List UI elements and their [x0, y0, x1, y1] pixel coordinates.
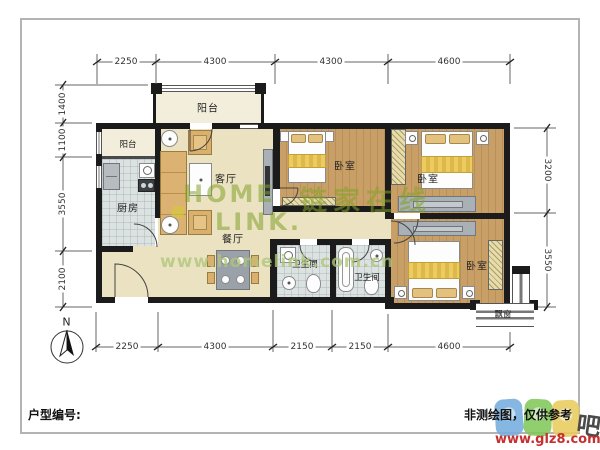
dim-bottom-1: 2250 [114, 342, 141, 352]
label-bedroom-mid: 卧室 [334, 158, 356, 173]
nightstand [405, 131, 418, 145]
label-bath-left: 卫生间 [292, 258, 318, 270]
site-watermark-url: www.glz8.com [495, 432, 600, 447]
wall-balcony-bottom-a [155, 123, 190, 129]
bathtub [338, 247, 354, 292]
wall-bedroom-tr-bottom-a [385, 213, 394, 219]
floorplan-page: 2250 4300 4300 4600 2250 4300 2150 2150 … [0, 0, 600, 450]
side-table-bottom [161, 216, 179, 234]
label-bath-right: 卫生间 [354, 271, 380, 283]
wardrobe-bottomright [398, 221, 476, 236]
nightstand [394, 286, 407, 299]
dining-table [216, 250, 250, 290]
closet-topright [391, 129, 406, 185]
unit-number-label: 户型编号: [28, 406, 81, 423]
wall-bath-divider [330, 245, 336, 297]
dining-chair [207, 272, 215, 284]
dim-left-2: 1100 [58, 127, 68, 154]
nightstand [462, 286, 475, 299]
dim-top-2: 4300 [202, 57, 229, 67]
living-top-window [240, 124, 258, 129]
wall-bedroom-br-left [385, 245, 391, 309]
nightstand [476, 131, 489, 145]
dim-top-3: 4300 [318, 57, 345, 67]
wall-dining-bath-divider [270, 239, 277, 303]
dim-bottom-5: 4600 [436, 342, 463, 352]
dining-chair [207, 255, 215, 267]
dim-left-1: 1400 [58, 91, 68, 118]
balcony-wall-right [261, 92, 264, 125]
wall-bottom-bedroom [388, 303, 480, 309]
kitchen-window [96, 166, 102, 188]
fridge [103, 163, 120, 190]
bathroom-sink [282, 276, 296, 290]
bed-mid [288, 131, 326, 183]
entrance-opening [115, 297, 148, 303]
wardrobe-topright [398, 196, 476, 212]
closet-bottomright [488, 240, 503, 290]
dim-bottom-2: 4300 [202, 342, 229, 352]
wall-kitchen-bottom [96, 246, 133, 252]
dim-bottom-3: 2150 [289, 342, 316, 352]
dim-left-3: 3550 [58, 191, 68, 218]
dim-right-1: 3200 [542, 157, 552, 184]
side-table-top [161, 130, 178, 147]
disclaimer-text: 非测绘图，仅供参考 [464, 406, 572, 423]
balcony-wall-left [153, 92, 156, 125]
label-balcony-top: 阳台 [197, 100, 219, 115]
bathroom-sink [370, 249, 383, 262]
balcony-top-window [162, 85, 255, 92]
label-balcony-left: 阳台 [119, 138, 136, 150]
wall-bedroom-tr-bottom-b [420, 213, 510, 219]
room-hallway [273, 212, 391, 239]
compass-north-label: N [62, 316, 71, 329]
armchair-top [188, 130, 212, 155]
kitchen-sink [139, 163, 155, 178]
dim-bottom-4: 2150 [347, 342, 374, 352]
armchair-bottom [188, 210, 212, 235]
stove [138, 179, 155, 192]
toilet [306, 274, 321, 293]
wall-bath-top-c [369, 239, 391, 245]
balcony-left-window [96, 132, 102, 154]
dim-right-2: 3550 [542, 247, 552, 274]
bay-window-post-top [512, 266, 530, 274]
label-kitchen: 厨房 [117, 200, 139, 215]
dim-top-4: 4600 [436, 57, 463, 67]
coffee-table [189, 163, 212, 196]
label-bedroom-bottomright: 卧室 [466, 258, 488, 273]
wall-balcony-kitchen-divider [102, 156, 155, 159]
brand-logo-dot [171, 205, 185, 219]
dining-chair [251, 255, 259, 267]
label-dining: 餐厅 [222, 231, 244, 246]
wall-top-left [96, 123, 158, 129]
dim-top-1: 2250 [113, 57, 140, 67]
nightstand [325, 131, 334, 142]
tv [265, 166, 270, 196]
nightstand [280, 131, 289, 142]
room-dining-extension [102, 246, 158, 297]
label-bay-window: 飘窗 [494, 308, 511, 320]
label-bedroom-topright: 卧室 [417, 171, 439, 186]
bed-bottomright [408, 241, 460, 301]
radiator [282, 197, 336, 206]
dim-left-4: 2100 [58, 266, 68, 293]
bay-window-side [512, 274, 530, 303]
wall-bedroom-mid-bottom [273, 206, 391, 212]
wall-bedroom-mid-left [273, 129, 280, 189]
dining-chair [251, 272, 259, 284]
label-living: 客厅 [215, 171, 237, 186]
